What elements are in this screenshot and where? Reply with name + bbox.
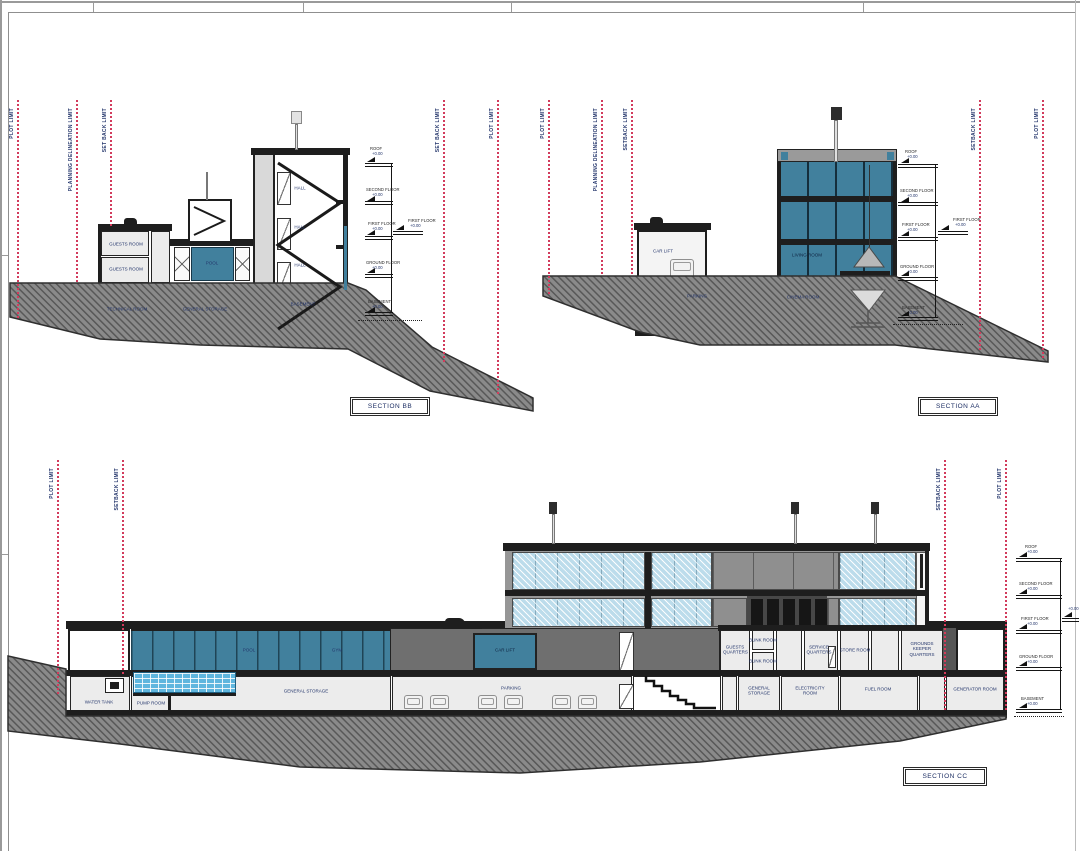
room-label: HALL (294, 185, 305, 190)
limit-label: PLOT LIMIT (489, 108, 495, 139)
level-shelf (898, 164, 938, 168)
level-shelf (1016, 709, 1062, 713)
bb-stair-bulkhead (188, 199, 232, 243)
bb-pool-wall-panel (174, 247, 190, 281)
level-elevation: +0.00 (1027, 549, 1038, 554)
level-shelf (365, 236, 393, 240)
level-elevation: +0.00 (410, 223, 421, 228)
limit-label: SETBACK LIMIT (114, 468, 120, 511)
aa-pendant-cable (869, 165, 870, 247)
bb-tower-door (277, 172, 291, 205)
cc-parked-car-icon (552, 695, 571, 709)
cc-basement-corridor (919, 676, 945, 711)
room-label: PUMP ROOM (137, 700, 165, 705)
aa-cinema-room (775, 283, 893, 329)
bb-tower-glazing-strip (344, 226, 347, 290)
level-shelf (898, 202, 938, 206)
aa-mast-cap (831, 107, 842, 120)
aa-garage-car-icon (670, 259, 694, 278)
room-label: GENERATOR ROOM (953, 686, 996, 691)
cc-room-small (722, 676, 737, 711)
cc-plot-limit-line: PLOT LIMIT (57, 460, 59, 695)
room-label: GUESTS QUARTERS (723, 645, 747, 656)
level-elevation: +0.00 (907, 227, 918, 232)
bb-pool-wall-panel (235, 247, 250, 281)
cc-roof-mast (794, 514, 797, 544)
level-marker-icon (1019, 589, 1027, 594)
bb-landing (336, 245, 343, 249)
cc-tank-fixture-icon (110, 682, 119, 689)
room-label: GENERAL STORAGE (744, 686, 774, 697)
limit-label: PLOT LIMIT (540, 108, 546, 139)
cc-room (871, 630, 899, 672)
bb-section-title-box: SECTION BB (352, 399, 428, 414)
level-shelf (365, 312, 393, 316)
aa-floor-slab (777, 239, 897, 245)
room-label: GENERAL STORAGE (284, 688, 329, 693)
cc-first-floor-glazing (651, 598, 712, 627)
frame-right-inner (1075, 0, 1076, 851)
aa-section-title-box: SECTION AA (920, 399, 996, 414)
aa-garage-roof-rail (645, 223, 692, 225)
cc-ground-door (619, 632, 634, 672)
room-label: LIVING ROOM (792, 252, 822, 257)
aa-corridor-door (751, 290, 769, 304)
aa-basement-slab (635, 329, 895, 336)
frame-top-outer (0, 1, 1080, 3)
level-shelf-offset (938, 231, 968, 235)
aa-tower-wall (893, 162, 897, 280)
bb-left-block-corridor (151, 231, 170, 283)
limit-label: PLOT LIMIT (1034, 108, 1040, 139)
level-marker-icon (1019, 624, 1027, 629)
level-marker-icon (367, 157, 375, 162)
room-label: CAR LIFT (495, 647, 515, 652)
bb-tower-door (277, 218, 291, 250)
room-label: GUESTS ROOM (109, 266, 143, 271)
level-shelf (1016, 630, 1062, 634)
bb-basement-dotted-line (358, 320, 422, 321)
cc-basement-dotted-line (1014, 716, 1064, 717)
cc-entry-door (783, 599, 795, 625)
cc-upper-floor-slab (505, 590, 928, 596)
aa-tower-glazing (779, 162, 897, 278)
cc-entry-door (751, 599, 763, 625)
cc-ladder-line (1060, 558, 1061, 709)
cc-entry-door (799, 599, 811, 625)
aa-tower-wall (777, 162, 781, 280)
limit-label: SET BACK LIMIT (435, 108, 441, 152)
aa-plot-limit-line: PLOT LIMIT (548, 100, 550, 295)
room-label: WATER TANK (85, 699, 114, 704)
cc-corridor (776, 630, 802, 672)
aa-basement-dotted-line (893, 324, 963, 325)
bb-tower-door (277, 262, 291, 295)
room-label: GENERAL STORAGE (183, 306, 228, 311)
level-elevation: +0.00 (372, 192, 383, 197)
aa-table (840, 271, 890, 276)
room-label: POOL (206, 260, 219, 265)
limit-label: SETBACK LIMIT (623, 108, 629, 151)
cc-plot-limit-line-right: PLOT LIMIT (1005, 460, 1007, 712)
bb-tower-roof-slab (251, 148, 350, 155)
limit-label: SET BACK LIMIT (102, 108, 108, 152)
room-label: PARKING (687, 293, 707, 298)
cc-first-floor-panel (827, 598, 839, 627)
level-elevation: +0.00 (907, 154, 918, 159)
level-shelf (1016, 667, 1062, 671)
level-marker-icon (1019, 552, 1027, 557)
level-elevation: +0.00 (372, 226, 383, 231)
cc-second-floor-glazing (651, 552, 712, 590)
drawing-sheet: GUESTS ROOM GUESTS ROOM POOL TECHNICAL R… (0, 0, 1080, 851)
limit-label: PLOT LIMIT (997, 468, 1003, 499)
level-marker-icon (941, 225, 949, 230)
room-label: BUNK ROOM (749, 658, 777, 663)
cc-pool-tank-slab (133, 693, 236, 696)
room-label: ELECTRICITY ROOM (793, 686, 827, 697)
room-label: PARKING (501, 685, 521, 690)
bb-landing (336, 200, 343, 204)
cc-basement-slab (66, 710, 1007, 718)
cc-parked-car-icon (578, 695, 597, 709)
limit-label: PLANNING DELINEATION LIMIT (593, 108, 599, 191)
cc-pool-water (133, 672, 236, 693)
cc-roof-car-platform (443, 627, 482, 629)
cc-fuel-room (840, 676, 918, 711)
cc-parked-car-icon (404, 695, 423, 709)
aa-parapet-glass (781, 152, 788, 160)
level-shelf (1016, 558, 1062, 562)
bb-basement-slab (98, 330, 348, 337)
level-marker-icon (1019, 703, 1027, 708)
limit-label: SETBACK LIMIT (971, 108, 977, 151)
aa-floor-slab (777, 196, 897, 202)
cc-parked-car-icon (504, 695, 523, 709)
cc-pavilion (68, 629, 130, 672)
aa-setback-limit-line: SETBACK LIMIT (631, 100, 633, 276)
level-marker-icon (1064, 612, 1072, 617)
aa-planning-delineation-line: PLANNING DELINEATION LIMIT (601, 100, 603, 276)
level-elevation: +0.00 (1027, 586, 1038, 591)
aa-parked-car-icon (646, 301, 664, 321)
bb-landing (336, 290, 343, 294)
cc-second-floor-glazing (839, 552, 916, 590)
cc-mast-cap (791, 502, 799, 514)
limit-label: PLOT LIMIT (49, 468, 55, 499)
cc-entry-door (815, 599, 827, 625)
room-label: GYM (332, 647, 342, 652)
cc-section-title-box: SECTION CC (905, 769, 985, 784)
bb-plot-limit-line-right: PLOT LIMIT (497, 100, 499, 395)
cc-mast-cap (549, 502, 557, 514)
cc-upper-right-wall (925, 550, 929, 628)
cc-first-floor-glazing (839, 598, 916, 627)
frame-tick (2, 255, 8, 256)
bb-bulkhead-mast (206, 172, 208, 200)
level-shelf (898, 237, 938, 241)
level-shelf (898, 317, 938, 321)
cc-first-floor-panel (712, 598, 747, 627)
cc-roof-mast (874, 514, 877, 544)
limit-label: PLOT LIMIT (9, 108, 15, 139)
bb-setback-limit-line-right: SET BACK LIMIT (443, 100, 445, 362)
cc-ground-band (390, 628, 720, 674)
section-title: SECTION BB (368, 403, 412, 410)
cc-second-floor-glazing (512, 552, 645, 590)
cc-setback-limit-line: SETBACK LIMIT (122, 460, 124, 676)
bb-roof-unit-rail (117, 225, 160, 227)
aa-parked-car-side-icon (689, 305, 739, 322)
level-elevation: +0.00 (955, 222, 966, 227)
room-label: FUEL ROOM (865, 686, 892, 691)
level-shelf-offset (1062, 618, 1079, 622)
level-shelf (365, 201, 393, 205)
cc-second-floor-panel (712, 552, 839, 590)
aa-ladder-line (935, 164, 936, 317)
limit-label: SETBACK LIMIT (936, 468, 942, 511)
section-title: SECTION AA (936, 403, 980, 410)
level-shelf (1016, 595, 1062, 599)
aa-plot-limit-line-right: PLOT LIMIT (1042, 100, 1044, 360)
cc-porch (956, 628, 1005, 674)
cc-first-floor-glazing (512, 598, 645, 627)
section-title: SECTION CC (922, 773, 967, 780)
level-shelf (365, 274, 393, 278)
room-label: CINEMA ROOM (787, 294, 820, 299)
cc-stair-hall (633, 676, 721, 711)
cc-basement-partition (168, 694, 171, 711)
cc-basement-door (619, 684, 634, 709)
room-label: STORE ROOM (840, 647, 871, 652)
frame-top-inner (8, 12, 1076, 13)
bb-plot-limit-line: PLOT LIMIT (17, 100, 19, 320)
level-elevation: +0.00 (907, 193, 918, 198)
room-label: BUNK ROOM (749, 637, 777, 642)
bb-setback-limit-line: SET BACK LIMIT (110, 100, 112, 228)
room-label: SERVICE QUARTERS (806, 645, 832, 656)
cc-upper-roof-slab (503, 543, 930, 551)
room-label: CAR LIFT (653, 248, 673, 253)
aa-parapet-glass (887, 152, 894, 160)
bb-roof-unit (124, 218, 137, 225)
room-label: HALL (294, 224, 305, 229)
level-elevation: +0.00 (1027, 621, 1038, 626)
cc-setback-limit-line-right: SETBACK LIMIT (944, 460, 946, 712)
room-label: POOL (243, 647, 256, 652)
cc-generator-room (946, 676, 1004, 711)
room-label: TECHNICAL ROOM (107, 306, 148, 311)
cc-mast-cap (871, 502, 879, 514)
cc-parked-car-icon (478, 695, 497, 709)
level-elevation: +0.00 (1068, 606, 1079, 611)
cc-roof-car-icon (445, 618, 465, 627)
level-elevation: +0.00 (1027, 701, 1038, 706)
bb-tower-mast (295, 124, 298, 150)
cc-parked-car-icon (430, 695, 449, 709)
room-label: GUESTS ROOM (109, 241, 143, 246)
level-shelf (365, 163, 393, 167)
bb-mast-cap (291, 111, 302, 124)
cc-pool-hall-glazing (131, 629, 390, 674)
bb-planning-delineation-line: PLANNING DELINEATION LIMIT (76, 100, 78, 282)
level-marker-icon (1019, 661, 1027, 666)
room-label: BASEMENT (291, 301, 316, 306)
frame-left-outer (0, 0, 2, 851)
level-marker-icon (396, 225, 404, 230)
aa-parked-car-icon (667, 301, 685, 321)
cc-entry-door (767, 599, 779, 625)
cc-end-slit-window (920, 554, 923, 588)
room-label: HALL (294, 262, 305, 267)
level-elevation: +0.00 (372, 151, 383, 156)
level-shelf (898, 277, 938, 281)
limit-label: PLANNING DELINEATION LIMIT (68, 108, 74, 191)
frame-tick (2, 554, 8, 555)
aa-tower-mast (834, 120, 838, 162)
level-elevation: +0.00 (1027, 659, 1038, 664)
cc-roof-mast (552, 514, 555, 544)
room-label: GROUNDS KEEPER QUARTERS (904, 641, 940, 657)
level-shelf-offset (393, 231, 423, 235)
aa-setback-limit-line-right: SETBACK LIMIT (979, 100, 981, 352)
